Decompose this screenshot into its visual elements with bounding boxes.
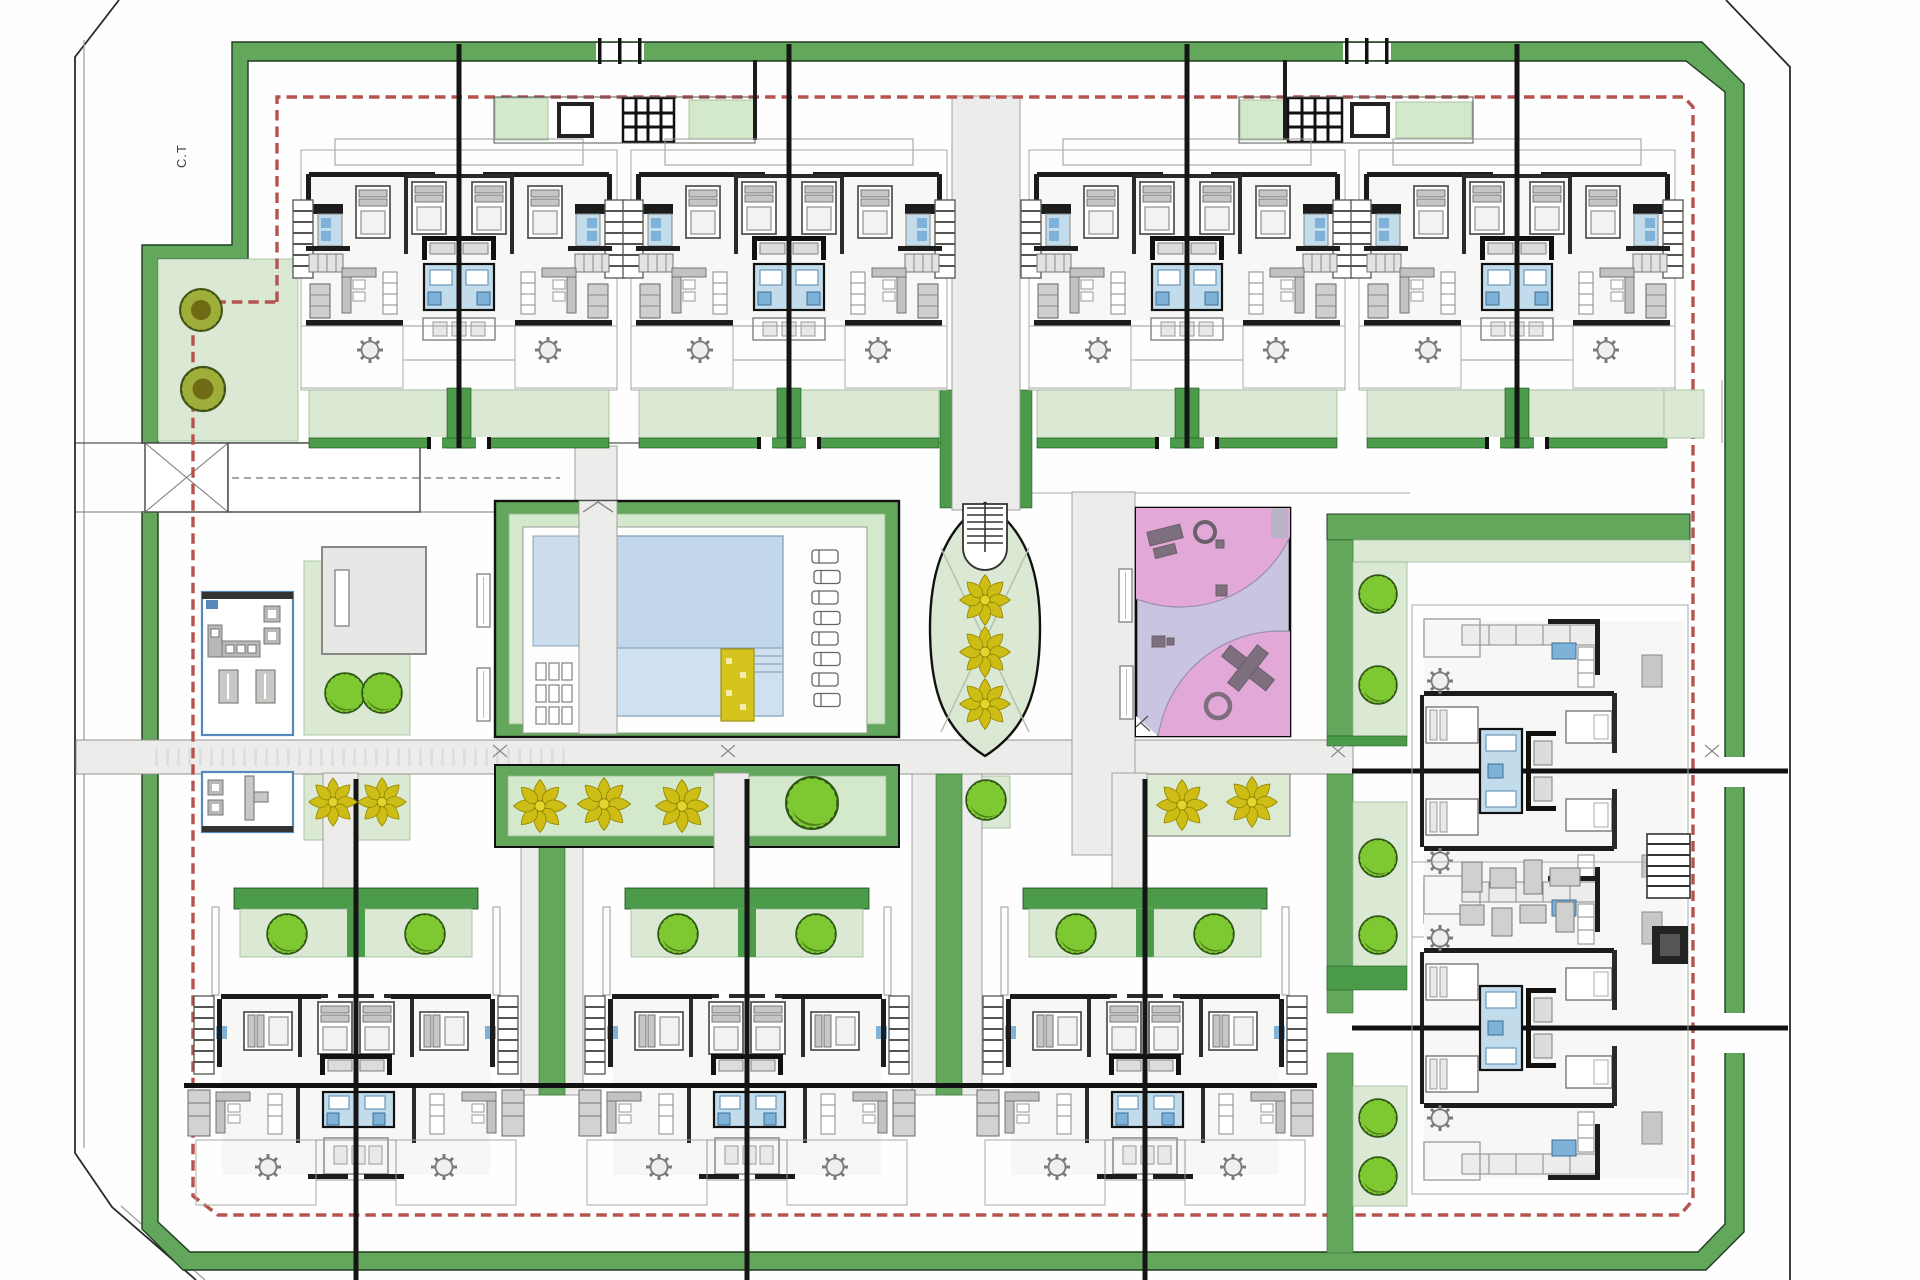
svg-text:C.T: C.T xyxy=(174,144,189,168)
